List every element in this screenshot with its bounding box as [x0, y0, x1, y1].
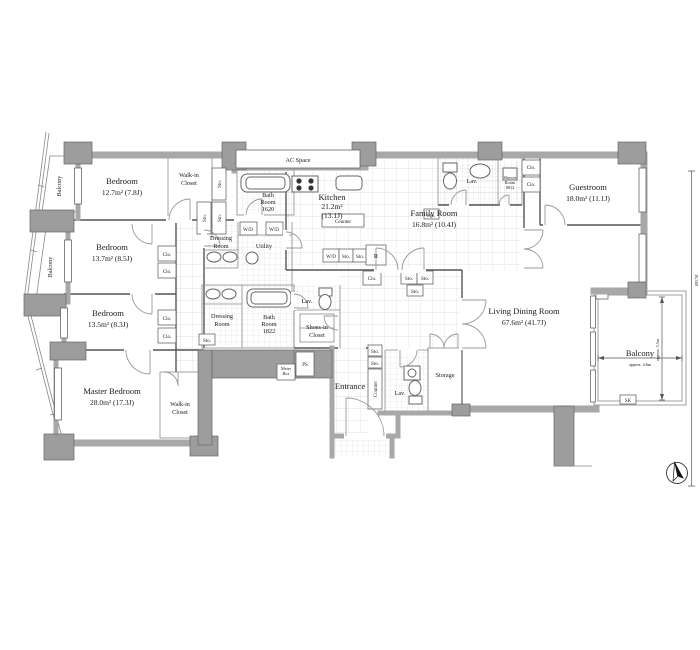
family-room-area: 16.8m² (10.4J) — [412, 220, 457, 229]
lav2-label: Lav. — [302, 298, 313, 305]
bath1822-l3: 1822 — [263, 328, 275, 335]
wd-label: W/D — [243, 228, 253, 233]
lav1-label: Lav. — [467, 178, 478, 185]
lav3-label: Lav. — [395, 390, 406, 397]
dressing2-l2: Room — [214, 321, 229, 328]
guestroom-name: Guestroom — [569, 182, 607, 192]
sto-label: Sto. — [203, 214, 208, 222]
bath1620-l1: Bath — [262, 192, 275, 199]
ps-label: PS — [302, 363, 308, 368]
master-bedroom-area: 28.0m² (17.3J) — [90, 398, 135, 407]
wd-label: W/D — [326, 255, 336, 260]
clo-label: Clo. — [163, 317, 171, 322]
master-bedroom-name: Master Bedroom — [83, 386, 141, 396]
dressing2-l1: Dressing — [211, 313, 233, 320]
kitchen-sink — [336, 176, 362, 190]
clo-label: Clo. — [163, 270, 171, 275]
dressing1-l1: Dressing — [210, 235, 232, 242]
washer-icon — [246, 252, 258, 264]
toilet-icon — [409, 381, 421, 396]
bedroom1-area: 12.7m² (7.8J) — [102, 188, 143, 197]
bedroom2-area: 13.7m² (8.5J) — [92, 254, 133, 263]
vanity-sink — [206, 289, 220, 299]
vanity-sink — [207, 252, 221, 262]
sto-label: Sto. — [371, 362, 379, 367]
walkin-closet2-l1: Walk-in — [170, 401, 190, 408]
toilet-tank — [443, 163, 457, 172]
walkin-closet1-l2: Closet — [181, 180, 197, 187]
counter-strip-label: Counter — [374, 381, 379, 397]
living-dining-name: Living Dining Room — [488, 306, 560, 316]
bath1822-l1: Bath — [263, 314, 276, 321]
guestroom-area: 18.0m² (11.1J) — [566, 194, 610, 203]
shower-room-l3: 0812 — [506, 185, 514, 190]
toilet-icon — [319, 295, 331, 310]
bath1620-l2: Room — [260, 199, 275, 206]
vanity-sink — [223, 252, 237, 262]
bath1620-l3: 1620 — [262, 206, 274, 213]
stove-icon — [292, 176, 318, 192]
lav-sink — [470, 164, 490, 178]
balcony-depth-dim: approx. 5.5m — [655, 338, 660, 361]
sto-label: Sto. — [405, 277, 413, 282]
utility-label: Utility — [256, 243, 273, 250]
ac-space-label: AC Space — [286, 157, 311, 164]
vanity-sink — [222, 289, 236, 299]
bedroom2-name: Bedroom — [96, 242, 128, 252]
toilet-icon — [444, 173, 457, 189]
floorplan-page: H602type 4BR/296.90m²(89.81tsubo) — [0, 0, 700, 650]
sto-label: Sto. — [342, 255, 350, 260]
clo-label: Clo. — [527, 183, 535, 188]
dressing1-l2: Room — [213, 243, 228, 250]
meter-box-l2: Box — [283, 371, 291, 376]
walkin-closet2-l2: Closet — [172, 409, 188, 416]
kitchen-counter-label: Counter — [335, 220, 351, 225]
sto-label: Sto. — [411, 290, 419, 295]
sk-label: SK — [625, 399, 632, 404]
storage-label: Storage — [436, 372, 455, 379]
kitchen-name: Kitchen — [319, 192, 347, 202]
kitchen-area1: 21.2m² — [321, 202, 343, 211]
clo-label: Clo. — [527, 166, 535, 171]
shoes-closet-l2: Closet — [309, 332, 325, 339]
living-dining-area: 67.6m² (41.7J) — [502, 318, 547, 327]
bath1822-l2: Room — [261, 321, 276, 328]
bedroom3-name: Bedroom — [92, 308, 124, 318]
sto-label: Sto. — [218, 214, 223, 222]
toilet-tank — [409, 396, 422, 404]
floorplan-drawing: AC Space — [0, 0, 700, 650]
sto-label: Sto. — [421, 277, 429, 282]
sto-label: Sto. — [218, 180, 223, 188]
sto-label: Sto. — [371, 350, 379, 355]
sto-label: Sto. — [427, 214, 435, 219]
walkin-closet1-l1: Walk-in — [179, 172, 199, 179]
balcony-left1-label: Balcony — [56, 175, 63, 197]
kitchen-area2: (13.1J) — [321, 211, 343, 220]
clo-label: Clo. — [368, 277, 376, 282]
clo-label: Clo. — [163, 335, 171, 340]
balcony-width-dim: approx. 4.6m — [629, 362, 652, 367]
bedroom1-name: Bedroom — [106, 176, 138, 186]
bedroom3-area: 13.5m² (8.3J) — [88, 320, 129, 329]
balcony-left2-label: Balcony — [47, 256, 54, 278]
balcony-right-label: Balcony — [626, 348, 655, 358]
sto-label: Sto. — [356, 255, 364, 260]
entrance-label: Entrance — [335, 381, 365, 391]
shoes-closet-l1: Shoes-in — [306, 324, 328, 331]
sto-label: Sto. — [203, 339, 211, 344]
wd-label: W/D — [269, 228, 279, 233]
clo-label: Clo. — [163, 253, 171, 258]
